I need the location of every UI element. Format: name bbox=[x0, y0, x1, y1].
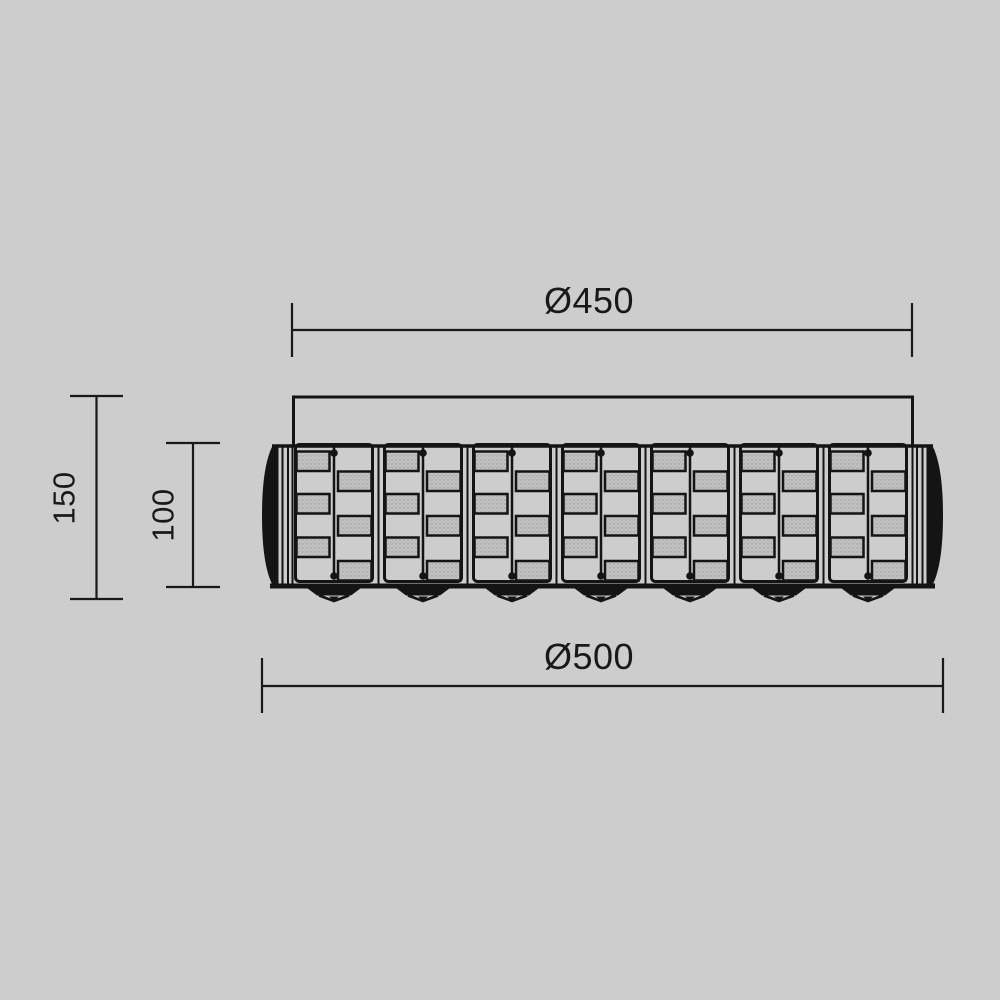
dimension-overall-height: 150 bbox=[47, 396, 124, 599]
crystal-drop-finial bbox=[574, 588, 628, 602]
crystal-drop-finial bbox=[752, 588, 806, 602]
crystal-drop-finial bbox=[307, 588, 361, 602]
crystal-panel bbox=[652, 445, 729, 582]
body-diameter-label: Ø500 bbox=[544, 636, 634, 677]
crystal-panel bbox=[741, 445, 818, 582]
crystal-panel bbox=[296, 445, 373, 582]
left-end-cap bbox=[262, 445, 293, 586]
technical-drawing-canvas: Ø450 150 100 bbox=[0, 0, 1000, 1000]
crystal-drop-finial bbox=[396, 588, 450, 602]
right-end-cap bbox=[913, 445, 944, 586]
dimension-body-diameter: Ø500 bbox=[262, 636, 943, 713]
crystal-drop-finial bbox=[663, 588, 717, 602]
crystal-drop-finial bbox=[485, 588, 539, 602]
crystal-panel bbox=[830, 445, 907, 582]
dimension-canopy-diameter: Ø450 bbox=[292, 280, 912, 357]
canopy-diameter-label: Ø450 bbox=[544, 280, 634, 321]
lamp-body bbox=[262, 445, 943, 602]
overall-height-label: 150 bbox=[47, 471, 82, 524]
lamp-dimension-drawing: Ø450 150 100 bbox=[0, 0, 1000, 1000]
crystal-drop-finial bbox=[841, 588, 895, 602]
crystal-panel bbox=[385, 445, 462, 582]
body-height-label: 100 bbox=[146, 488, 181, 541]
crystal-panel bbox=[563, 445, 640, 582]
dimension-body-height: 100 bbox=[146, 443, 221, 587]
canopy-outline bbox=[294, 397, 913, 446]
crystal-panel bbox=[474, 445, 551, 582]
